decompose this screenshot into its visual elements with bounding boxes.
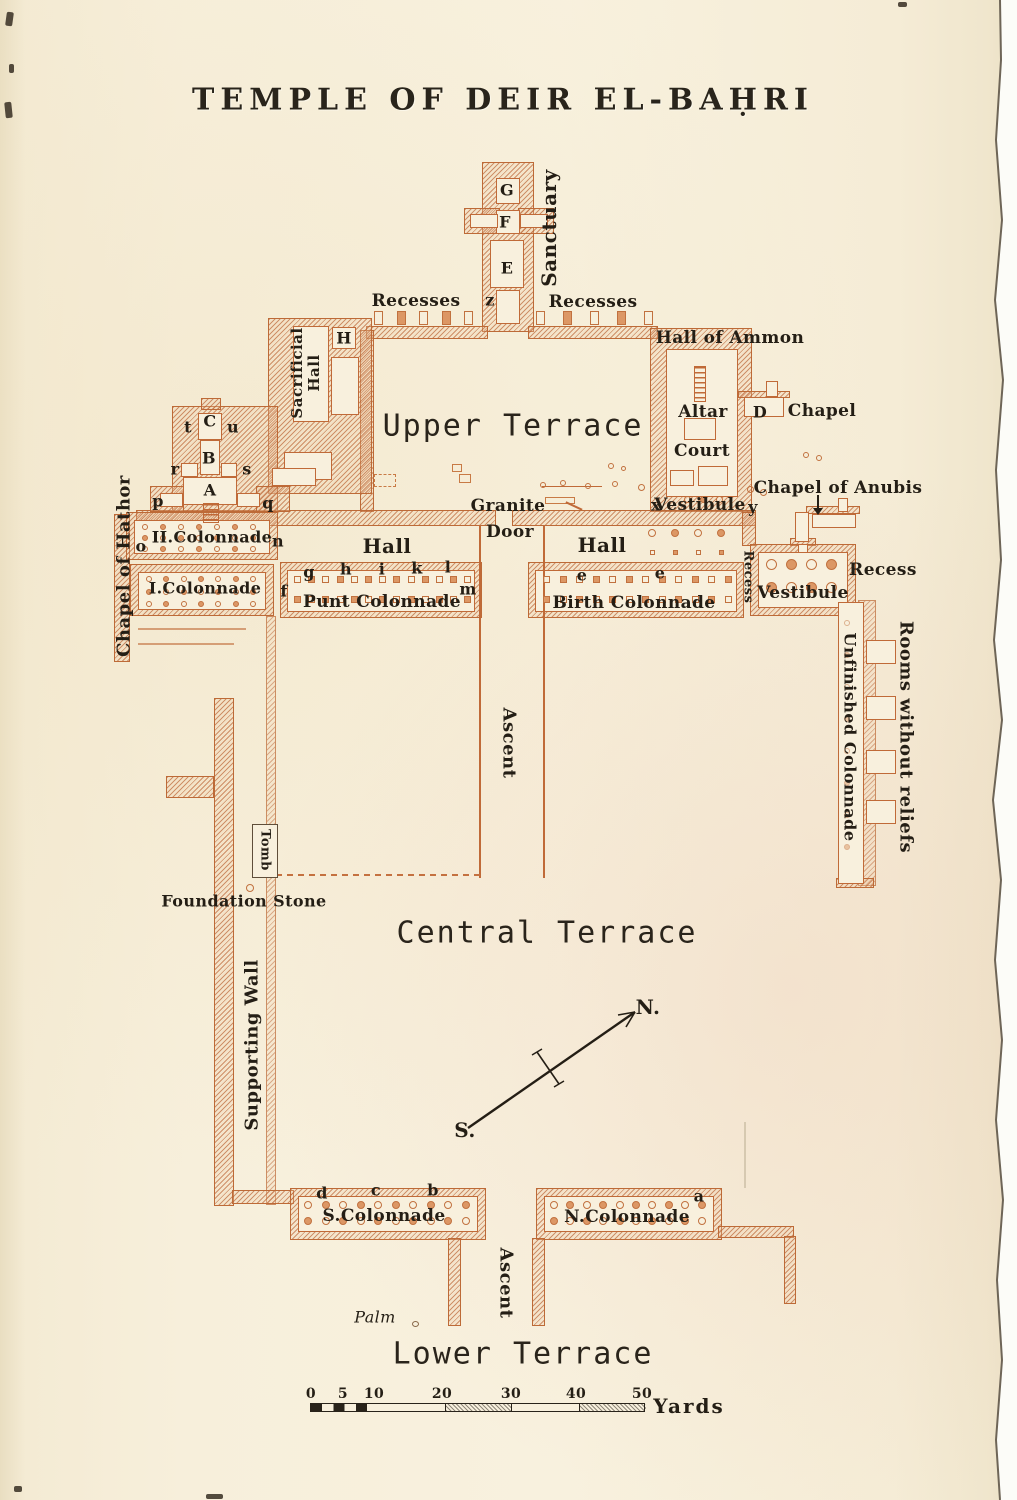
label-u: u [227,418,239,437]
label-recess-west: Recess [741,551,756,604]
altar-symbol [694,366,706,402]
label-upper-terrace: Upper Terrace [383,409,644,444]
step-line [138,643,234,645]
label-m: m [459,580,476,599]
label-sanctuary: Sanctuary [537,169,561,287]
paper-speck [206,1494,223,1499]
column-marker [442,311,451,325]
court-artifact [542,486,602,487]
room-outline [181,463,198,477]
paper-speck [14,1486,22,1492]
ramp-wall-line [479,526,481,878]
label-e2: e [655,564,666,583]
column-marker [450,576,457,583]
label-e1: e [577,566,588,585]
terrace-edge-wall [266,616,276,1205]
label-sacrificial-hall: Sacrificial Hall [289,313,324,433]
label-s: s [242,460,251,479]
label-g: g [303,563,315,582]
label-granite: Granite [471,496,546,516]
label-vestibule-north: Vestibule [654,495,745,515]
label-ascent-middle: Ascent [499,708,520,779]
label-y: y [748,498,758,517]
court-artifact [621,466,626,471]
map-page: TEMPLE OF DEIR EL-BAḤRI G F E Sanctuary … [0,0,1017,1500]
label-f: f [280,582,287,601]
room-outline [866,750,896,774]
column-marker [563,311,572,325]
column-marker [550,1201,558,1209]
column-marker [786,559,797,570]
scale-segment [311,1404,378,1411]
paper-crease [744,1122,746,1188]
wall-segment [232,1190,294,1204]
scale-tick-20: 20 [432,1386,452,1402]
label-lower-terrace: Lower Terrace [393,1337,654,1372]
court-artifact [585,483,591,489]
column-marker [673,550,678,555]
label-c2: c [371,1181,381,1200]
label-vestibule-east: Vestibule [757,583,848,603]
column-marker [806,559,817,570]
label-foundation-stone: Foundation Stone [161,892,326,911]
court-artifact [540,482,546,488]
column-marker [304,1217,312,1225]
column-marker [590,311,599,325]
column-marker [844,620,850,626]
label-d2: d [316,1184,328,1203]
label-colonnade-1: I.Colonnade [149,579,262,598]
column-marker [419,311,428,325]
column-marker [642,576,649,583]
label-compass-south: S. [454,1118,476,1142]
column-marker [766,559,777,570]
wall-segment [201,398,221,410]
column-marker [536,311,545,325]
wall-segment [742,512,756,546]
label-hall-of-ammon: Hall of Ammon [656,328,805,348]
label-altar: Altar [678,402,727,422]
court-artifact [608,463,614,469]
column-marker [181,601,187,607]
label-o: o [135,537,146,556]
column-marker [250,601,256,607]
label-unfinished-colonnade: Unfinished Colonnade [841,633,860,842]
court-artifact [560,480,566,486]
column-marker [196,546,202,552]
column-marker [142,524,148,530]
court-artifact [803,452,809,458]
paper-speck [9,64,14,73]
label-yards: Yards [653,1394,724,1418]
label-c-cap: C [203,412,216,431]
scale-tick-30: 30 [501,1386,521,1402]
scale-tick-40: 40 [566,1386,586,1402]
court-artifact [638,484,645,491]
room-outline [698,466,728,486]
label-ascent-lower: Ascent [496,1248,517,1319]
label-palm: Palm [354,1308,395,1327]
label-hall-left: Hall [363,534,412,558]
room-outline [237,493,260,507]
court-artifact [452,464,462,472]
room-outline [766,381,778,397]
column-marker [560,576,567,583]
column-marker [198,601,204,607]
column-marker [648,529,656,537]
scale-tick-50: 50 [632,1386,652,1402]
column-marker [232,546,238,552]
label-rooms-without-reliefs: Rooms without reliefs [896,621,917,853]
label-r: r [171,460,180,479]
column-marker [543,576,550,583]
label-supporting-wall: Supporting Wall [242,959,263,1130]
scale-segment [445,1404,512,1411]
label-z: z [485,291,495,310]
wall-segment [784,1236,796,1304]
court-artifact [612,481,618,487]
room-outline [812,514,856,528]
column-marker [294,576,301,583]
column-marker [462,1201,470,1209]
label-central-terrace: Central Terrace [397,916,698,951]
column-marker [694,529,702,537]
label-l: l [445,558,451,577]
column-marker [698,1217,706,1225]
label-door: Door [486,522,534,542]
room-outline [670,470,694,486]
label-chapel-of-anubis: Chapel of Anubis [754,478,923,498]
label-n-colonnade: N.Colonnade [564,1207,690,1227]
label-h2: h [340,560,352,579]
scale-bar [310,1403,645,1412]
column-marker [464,311,473,325]
scale-tick-0: 0 [306,1386,316,1402]
label-s-colonnade: S.Colonnade [322,1206,445,1226]
label-chapel: Chapel [788,401,856,421]
room-outline [221,463,237,477]
column-marker [609,576,616,583]
column-marker [696,550,701,555]
column-marker [397,311,406,325]
column-marker [593,576,600,583]
label-compass-north: N. [636,995,661,1019]
label-hall-right: Hall [578,533,627,557]
label-recess-east: Recess [849,560,917,580]
room-outline [795,512,809,542]
palm-marker [412,1321,419,1327]
label-tomb: Tomb [258,829,273,871]
dashed-terrace-line [276,874,480,876]
column-marker [650,550,655,555]
paper-deckle-edge [980,0,1017,1500]
wall-segment [166,776,214,798]
column-marker [462,1217,470,1225]
column-marker [160,546,166,552]
label-recesses-left: Recesses [372,291,461,311]
label-i: i [379,560,385,579]
column-marker [374,311,383,325]
label-recesses-right: Recesses [549,292,638,312]
step-line [138,628,246,630]
room-outline [838,498,848,512]
room-outline [331,357,359,415]
label-chamber-g: G [500,181,514,200]
label-a2: a [694,1187,705,1206]
label-p: p [152,492,164,511]
label-h: H [336,329,352,348]
scale-segment [579,1404,646,1411]
column-marker [543,596,550,603]
column-marker [626,576,633,583]
column-marker [717,529,725,537]
label-birth-colonnade: Birth Colonnade [552,593,715,613]
label-chamber-e: E [501,259,514,278]
scale-tick-5: 5 [338,1386,348,1402]
column-marker [725,576,732,583]
column-marker [365,576,372,583]
column-marker [322,576,329,583]
court-artifact [459,474,471,483]
court-artifact [374,474,396,487]
column-marker [178,546,184,552]
wall-segment [528,326,658,339]
label-a-cap: A [204,481,217,500]
label-k: k [411,559,423,578]
map-title: TEMPLE OF DEIR EL-BAḤRI [192,83,814,118]
column-marker [393,576,400,583]
wall-segment [366,326,488,339]
column-marker [304,1201,312,1209]
stair-symbol [203,503,219,523]
anubis-arrowhead-icon [813,508,823,515]
column-marker [617,311,626,325]
label-t: t [184,418,192,437]
column-marker [692,576,699,583]
column-marker [826,559,837,570]
column-marker [719,550,724,555]
room-outline [866,696,896,720]
paper-speck [4,102,13,119]
wall-segment [532,1238,545,1326]
label-court: Court [674,441,730,461]
label-b-cap: B [202,449,216,468]
label-punt-colonnade: Punt Colonnade [303,592,461,612]
column-marker [675,576,682,583]
column-marker [725,596,732,603]
label-chapel-of-hathor: Chapel of Hathor [114,475,135,657]
wall-segment [448,1238,461,1326]
column-marker [436,576,443,583]
wall-segment [718,1226,794,1238]
column-marker [250,546,256,552]
scale-tick-10: 10 [364,1386,384,1402]
column-marker [294,596,301,603]
anubis-arrow [817,495,819,509]
room-outline [272,468,316,486]
paper-speck [898,2,907,7]
supporting-wall [214,698,234,1206]
label-d: D [753,403,767,422]
label-q: q [262,494,274,513]
paper-speck [5,12,14,27]
column-marker [844,844,850,850]
label-b2: b [427,1181,439,1200]
column-marker [233,601,239,607]
court-artifact [816,455,822,461]
column-marker [214,546,220,552]
column-marker [550,1217,558,1225]
room-outline [866,800,896,824]
column-marker [146,601,152,607]
room-outline [470,214,498,228]
label-n: n [272,532,284,551]
column-marker [708,576,715,583]
column-marker [644,311,653,325]
room-outline [496,290,520,324]
column-marker [671,529,679,537]
room-outline [866,640,896,664]
label-colonnade-2: II.Colonnade [152,528,273,547]
label-chamber-f: F [499,213,511,232]
